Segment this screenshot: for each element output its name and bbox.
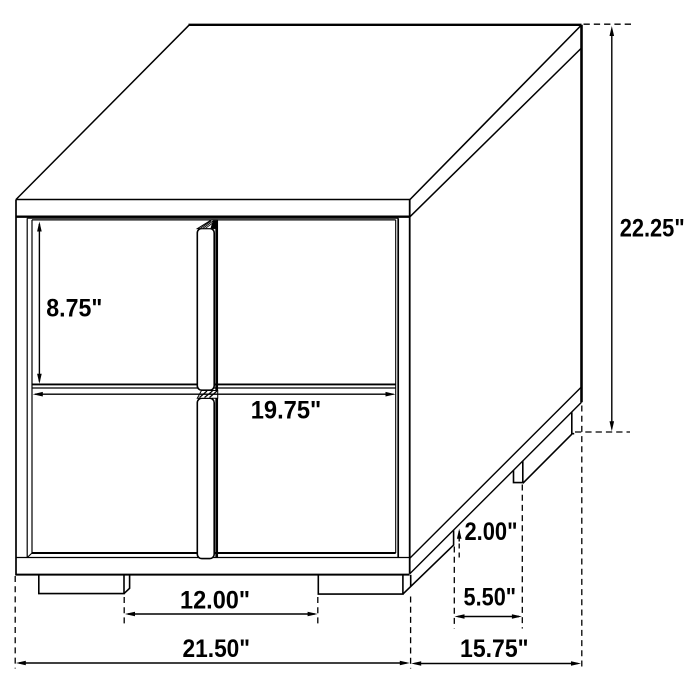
svg-text:19.75": 19.75" xyxy=(251,397,322,425)
svg-text:12.00": 12.00" xyxy=(180,587,250,615)
svg-text:2.00": 2.00" xyxy=(465,518,518,546)
svg-text:21.50": 21.50" xyxy=(183,635,251,663)
svg-text:22.25": 22.25" xyxy=(620,215,685,243)
svg-text:8.75": 8.75" xyxy=(46,295,102,323)
svg-text:15.75": 15.75" xyxy=(460,635,529,663)
svg-text:5.50": 5.50" xyxy=(464,584,517,612)
